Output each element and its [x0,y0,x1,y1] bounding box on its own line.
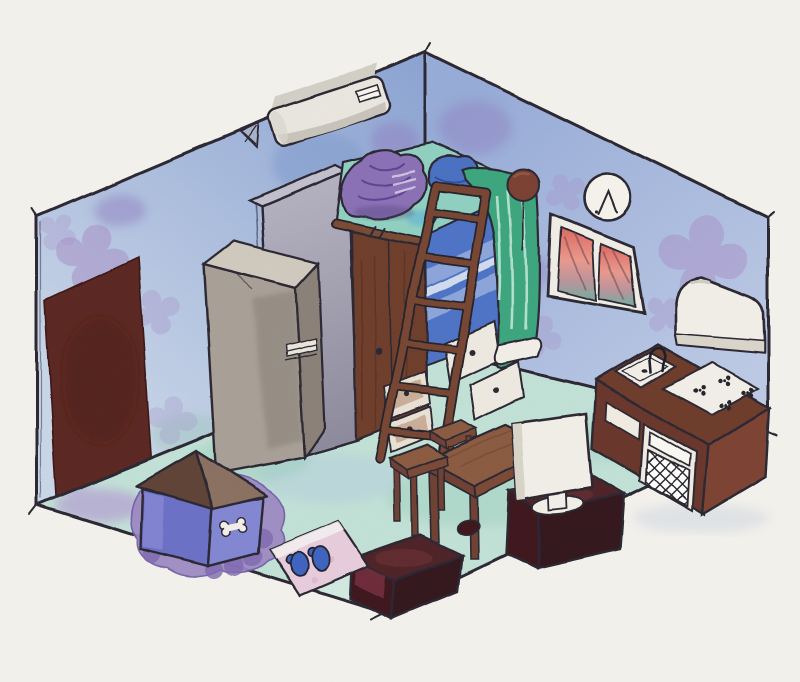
refrigerator [204,241,325,474]
wardrobe-knob [376,349,383,356]
room-illustration [0,0,800,682]
wall-clock [584,174,630,220]
